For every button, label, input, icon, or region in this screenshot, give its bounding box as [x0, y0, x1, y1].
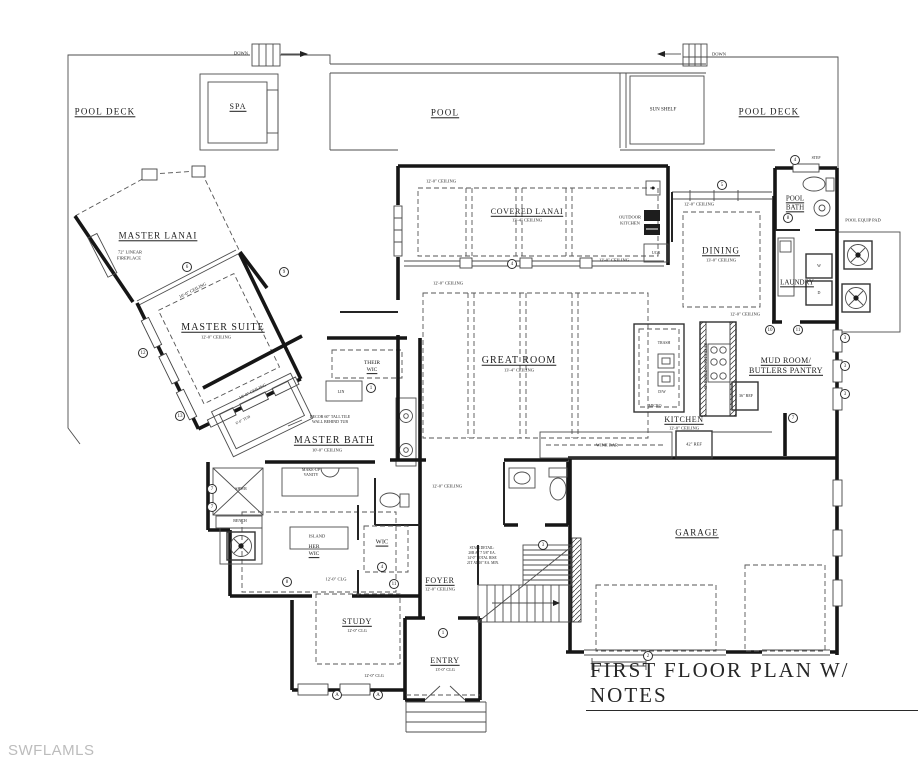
study-label: STUDY — [342, 618, 372, 626]
keynote-marker: 1 — [366, 383, 376, 393]
master-suite-clg: 12'-0" CEILING — [201, 336, 231, 341]
fan-unit — [844, 241, 872, 269]
her-wic-2: WIC — [309, 552, 320, 558]
clg-12-h: 12'-0" CLG — [364, 674, 384, 678]
kitchen-clg: 12'-0" CEILING — [669, 427, 699, 432]
entry-steps — [406, 702, 486, 732]
deck-stairs-right — [657, 44, 707, 66]
plan-title: FIRST FLOOR PLAN W/ NOTES — [586, 658, 918, 711]
keynote-marker: 5 — [717, 180, 727, 190]
wine-bar-label: WINE BAR — [596, 444, 618, 449]
pool-bath-1: POOL — [786, 195, 804, 202]
pool-deck-right-label: POOL DECK — [739, 107, 800, 116]
mud-room-1: MUD ROOM/ — [761, 357, 812, 365]
makeup-vanity — [282, 468, 358, 496]
keynote-marker: 1 — [438, 628, 448, 638]
mud-room-2: BUTLERS PANTRY — [749, 367, 823, 375]
foyer-label: FOYER — [425, 577, 454, 585]
keynote-marker: 13 — [175, 411, 185, 421]
entry-doors — [425, 686, 465, 700]
sink-basin — [400, 444, 413, 457]
pool-equip-pad-label: POOL EQUIP PAD — [845, 219, 881, 224]
master-suite — [133, 253, 302, 434]
ceiling-12-a: 12'-0" CEILING — [426, 180, 456, 185]
laundry-label: LAUNDRY — [780, 279, 814, 286]
keynote-marker: 3 — [840, 361, 850, 371]
shwr-label: SHWR — [235, 487, 247, 491]
micro-label: MICRO — [648, 404, 661, 408]
watermark: SWFLAMLS — [8, 742, 95, 759]
makeup-2: VANITY — [304, 473, 319, 477]
ref-42-label: 42" REF — [686, 443, 702, 448]
floor-plan-canvas: POOL DECKSPAPOOLSUN SHELFPOOL DECKDOWNDO… — [0, 0, 918, 768]
outdoor-kitchen-2: KITCHEN — [620, 222, 640, 227]
keynote-marker: 9 — [279, 267, 289, 277]
their-wic-1: THEIR — [364, 361, 380, 367]
keynote-marker: 7 — [207, 484, 217, 494]
dryer-label: D — [818, 291, 821, 295]
keynote-marker: 10 — [765, 325, 775, 335]
down-right-label: DOWN — [712, 53, 726, 58]
keynote-marker: 6 — [182, 262, 192, 272]
keynote-marker: 3 — [840, 389, 850, 399]
dining-clg: 13'-0" CEILING — [706, 259, 736, 264]
ceiling-12-b: 12'-0" CEILING — [599, 259, 629, 264]
her-wic-1: HER — [309, 545, 320, 551]
great-room-clg: 13'-4" CEILING — [504, 369, 534, 374]
dining-label: DINING — [702, 246, 740, 255]
sink-basin — [814, 200, 830, 216]
keynote-marker: 4 — [507, 259, 517, 269]
powder-toilet — [550, 478, 566, 500]
ref-36-label: 36" REF — [739, 394, 753, 398]
master-suite-label: MASTER SUITE — [181, 323, 264, 334]
keynote-marker: 3 — [538, 540, 548, 550]
tub-note-2: WALL BEHIND TUB — [312, 420, 348, 424]
kitchen-label: KITCHEN — [664, 416, 703, 424]
keynote-marker: A — [373, 690, 383, 700]
ceiling-12-d: 12'-0" CEILING — [730, 313, 760, 318]
keynote-marker: 11 — [793, 325, 803, 335]
down-left-label: DOWN — [234, 52, 248, 57]
covered-lanai-label: COVERED LANAI — [491, 208, 563, 216]
toilet — [380, 493, 400, 507]
lin-label: LIN — [338, 390, 345, 394]
keynote-marker: 12 — [138, 348, 148, 358]
range-note: 48" RANGE W/ POT FILLER — [704, 343, 708, 390]
keynote-marker: A — [332, 690, 342, 700]
study-clg: 12'-0" CLG — [347, 629, 367, 633]
bench-label: BENCH — [233, 519, 247, 523]
sink-basin — [400, 410, 413, 423]
sun-shelf-label: SUN SHELF — [650, 107, 677, 112]
stair-note-4: 21T AT 10" EA. MIN. — [467, 562, 499, 566]
master-bath-clg: 10'-0" CEILING — [312, 449, 342, 454]
fan-unit — [842, 284, 870, 312]
pool-deck-left-label: POOL DECK — [75, 107, 136, 116]
island-label: ISLAND — [309, 535, 326, 540]
ceiling-12-c: 12'-0" CEILING — [684, 203, 714, 208]
their-wic-2: WIC — [367, 368, 378, 374]
trash-label: TRASH — [658, 341, 670, 345]
covered-lanai-clg: 13'-4" CEILING — [512, 219, 542, 224]
wic-label: WIC — [376, 540, 389, 547]
clg-12-f: 12'-0" CLG — [325, 578, 346, 583]
pool-equip-pad-outline — [838, 232, 900, 332]
keynote-marker: 7 — [207, 502, 217, 512]
pool-label: POOL — [431, 108, 459, 117]
keynote-marker: 3 — [840, 333, 850, 343]
clg-12-g: 12'-0" CEILING — [432, 485, 462, 490]
dw-label: D/W — [658, 390, 665, 394]
master-bath-label: MASTER BATH — [294, 436, 374, 447]
ceiling-12-e: 12'-0" CEILING — [433, 282, 463, 287]
entry-label: ENTRY — [430, 657, 459, 665]
keynote-marker: 8 — [282, 577, 292, 587]
outdoor-kitchen-1: OUTDOOR — [619, 216, 641, 221]
keynote-marker: 7 — [788, 413, 798, 423]
foyer-clg: 12'-0" CEILING — [425, 588, 455, 593]
keynote-marker: 8 — [783, 213, 793, 223]
keynote-marker: 4 — [790, 155, 800, 165]
fireplace-note-1: 72" LINEAR — [118, 251, 142, 256]
entry-clg: 13'-0" CLG — [435, 668, 455, 672]
step-note: STEP — [812, 156, 821, 160]
garage-label: GARAGE — [675, 528, 719, 537]
toilet — [803, 177, 825, 191]
washer-label: W — [817, 264, 821, 268]
ucr-label: UCR — [652, 251, 660, 255]
garage-bay-1 — [596, 585, 716, 651]
great-room-label: GREAT ROOM — [482, 356, 557, 367]
powder-sink — [509, 468, 535, 488]
pool-bath-2: BATH — [786, 204, 804, 211]
spa-outline — [200, 74, 278, 150]
keynote-marker: 11 — [389, 579, 399, 589]
fireplace-note-2: FIREPLACE — [117, 257, 141, 262]
keynote-marker: 4 — [377, 562, 387, 572]
spa-label: SPA — [230, 103, 247, 111]
master-lanai-label: MASTER LANAI — [119, 231, 198, 240]
lanai-slider-door — [137, 250, 238, 305]
garage-bay-2 — [745, 565, 825, 651]
